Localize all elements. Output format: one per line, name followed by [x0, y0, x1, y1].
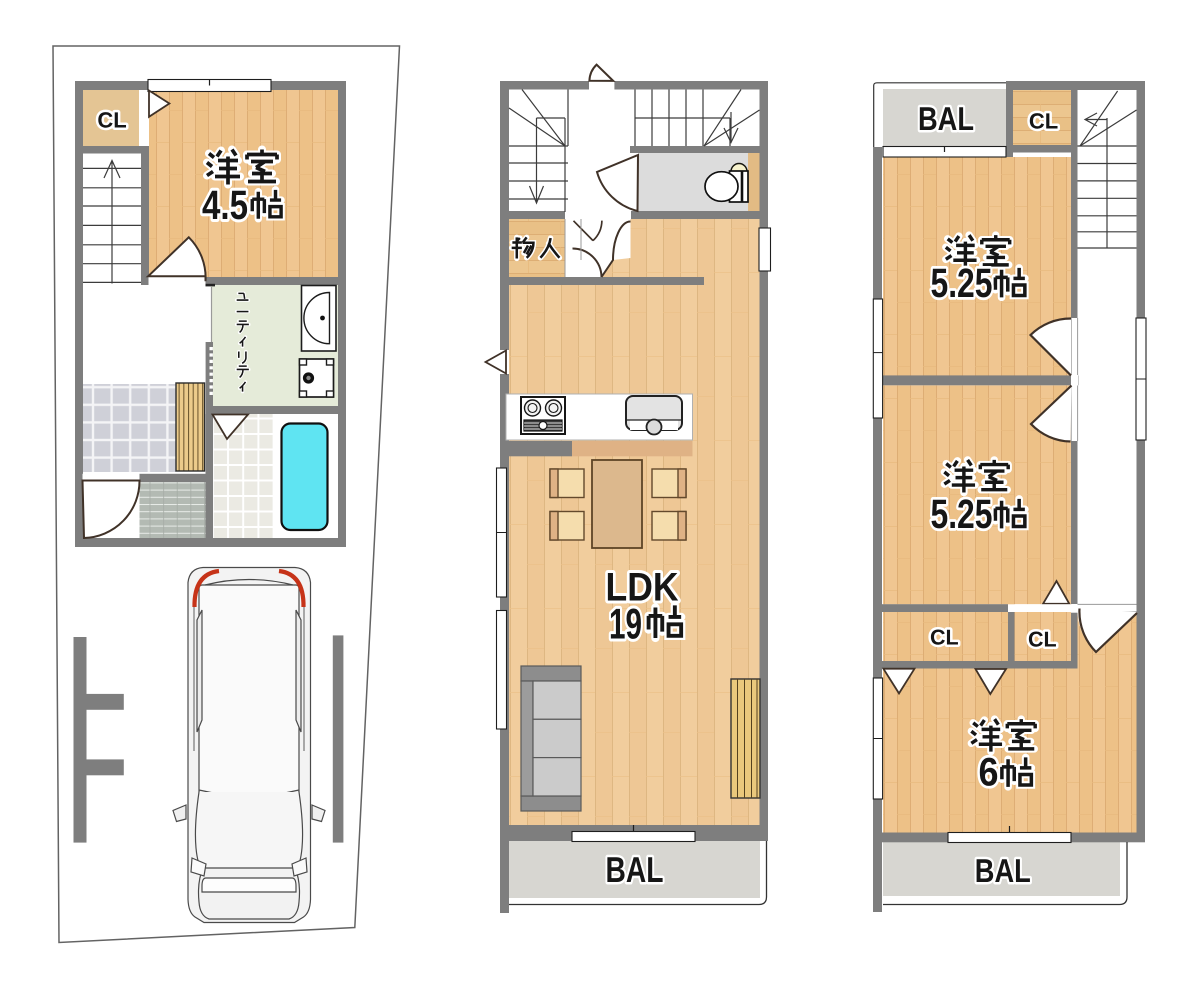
- svg-text:5.25: 5.25: [931, 491, 993, 537]
- svg-text:BAL: BAL: [918, 100, 974, 137]
- svg-text:4.5: 4.5: [202, 182, 248, 228]
- svg-text:CL: CL: [1028, 628, 1057, 652]
- svg-text:CL: CL: [1029, 109, 1058, 134]
- svg-text:6: 6: [979, 751, 999, 795]
- svg-text:5.25: 5.25: [931, 260, 993, 306]
- svg-text:BAL: BAL: [606, 849, 664, 890]
- svg-text:CL: CL: [97, 108, 126, 133]
- svg-text:CL: CL: [930, 626, 959, 650]
- svg-text:19: 19: [609, 601, 642, 649]
- svg-text:BAL: BAL: [975, 852, 1031, 889]
